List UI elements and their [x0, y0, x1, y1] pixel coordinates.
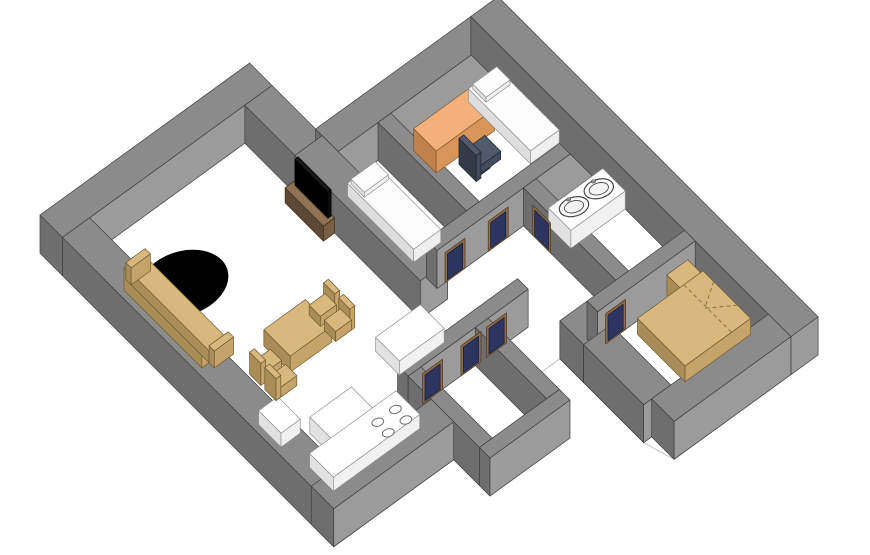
apartment-3d-floorplan: [0, 0, 870, 555]
face-front: [276, 375, 281, 400]
face-front: [328, 190, 331, 218]
face-front: [476, 152, 481, 181]
